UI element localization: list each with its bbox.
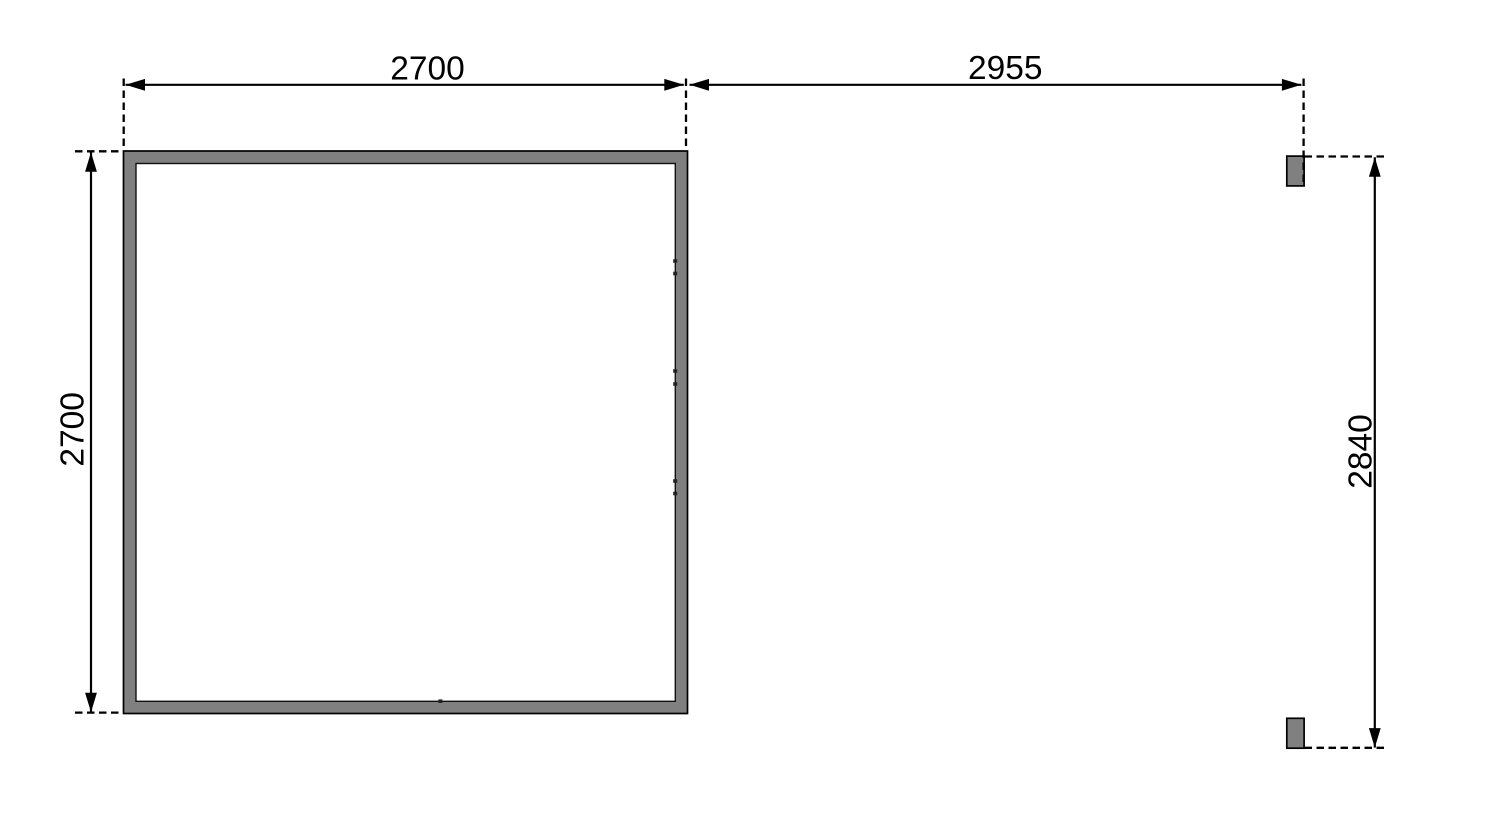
svg-text:2700: 2700 <box>390 51 465 88</box>
svg-text:2700: 2700 <box>54 392 91 467</box>
svg-text:2840: 2840 <box>1343 414 1380 489</box>
svg-text:2955: 2955 <box>968 50 1043 87</box>
